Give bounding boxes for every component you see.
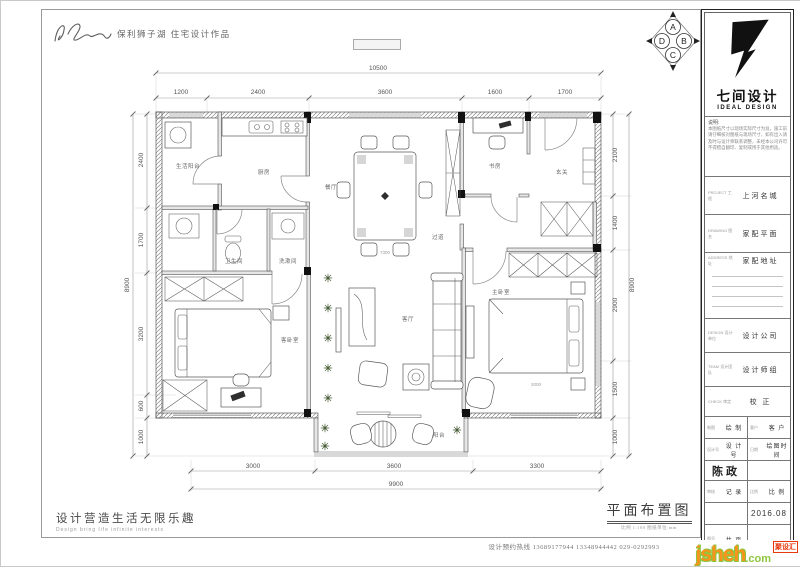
svg-text:2400: 2400 — [251, 89, 266, 96]
compass-b: B — [681, 36, 687, 46]
svg-text:2900: 2900 — [612, 297, 619, 312]
tb-date-row: 2016.08 — [705, 503, 790, 525]
svg-text:3200: 3200 — [138, 326, 145, 341]
room-balcony: 阳台 — [433, 431, 445, 439]
svg-text:3000: 3000 — [246, 463, 261, 470]
room-master-bedroom: 主卧室 — [492, 288, 510, 296]
svg-text:1500: 1500 — [612, 381, 619, 396]
signature-mark — [51, 17, 113, 49]
svg-text:2400: 2400 — [138, 152, 145, 167]
tb-stamp-row: 陈政 — [705, 461, 790, 481]
room-bath: 卫生间 — [225, 257, 243, 265]
svg-text:1700: 1700 — [138, 232, 145, 247]
svg-text:7300: 7300 — [380, 250, 391, 255]
drawing-title: 平面布置图 比例 1:100 图纸单位:mm — [595, 500, 703, 531]
svg-text:3600: 3600 — [378, 89, 393, 96]
room-service-balcony: 生活阳台 — [176, 162, 200, 170]
svg-text:1200: 1200 — [174, 89, 189, 96]
svg-text:3600: 3600 — [387, 463, 402, 470]
contact-line: 设计预约热线 13689177944 13348944442 029-02929… — [441, 541, 707, 551]
compass-a: A — [670, 22, 676, 32]
dim-left-overall: 8900 — [124, 277, 131, 292]
title-block: 七间设计 IDEAL DESIGN 说明: 本图纸尺寸以现场实际尺寸为准，施工前… — [701, 9, 794, 557]
dim-right-overall: 8900 — [629, 277, 636, 292]
room-living: 客厅 — [402, 315, 414, 323]
project-title: 保利狮子湖 住宅设计作品 — [117, 28, 231, 40]
floor-plan: 10500 1200 2400 3600 1600 1700 2400 1700… — [121, 56, 646, 506]
room-dining: 餐厅 — [325, 183, 337, 191]
drawing-date: 2016.08 — [750, 509, 788, 518]
studio-slogan: 设计营造生活无限乐趣 Design bring life infinite in… — [56, 510, 196, 533]
tb-row-project: PROJECT 工程 上河名城 — [705, 177, 790, 215]
svg-text:1700: 1700 — [558, 89, 573, 96]
furniture-layer — [163, 118, 597, 447]
seven-logo-icon — [718, 17, 778, 79]
svg-text:3300: 3300 — [530, 463, 545, 470]
room-study: 书房 — [489, 162, 501, 170]
compass: A B C D — [644, 9, 702, 73]
watermark-site: jsheh — [695, 546, 745, 565]
firm-name-cn: 七间设计 — [705, 85, 790, 105]
dim-bottom-overall: 9900 — [389, 481, 404, 488]
svg-text:1000: 1000 — [612, 429, 619, 444]
top-stamp-box — [353, 39, 401, 50]
room-guest-bedroom: 客卧室 — [281, 336, 299, 344]
watermark-tld: .com — [745, 554, 771, 565]
notes-section: 说明: 本图纸尺寸以现场实际尺寸为准，施工前 请仔细核对图纸与现场尺寸，如有出入… — [705, 117, 790, 177]
designer-signature — [51, 17, 113, 49]
tb-grid-row-2: 设计号设 计 号 日期绘图时间 — [705, 439, 790, 461]
designer-stamp: 陈政 — [707, 463, 745, 479]
room-entry: 玄关 — [556, 168, 568, 176]
compass-d: D — [659, 36, 665, 46]
tb-row-address: ADDRESS 地址 家配地址 — [705, 253, 790, 319]
tb-grid-row-1: 制图绘 制 客户客 户 — [705, 417, 790, 439]
drawing-sheet: 保利狮子湖 住宅设计作品 A B C D — [0, 0, 800, 567]
tb-row-design-unit: DESIGN 设计单位 设计公司 — [705, 319, 790, 353]
watermark-badge: 聚设汇 — [773, 541, 798, 553]
svg-text:2100: 2100 — [612, 147, 619, 162]
svg-text:1400: 1400 — [612, 215, 619, 230]
firm-logo: 七间设计 IDEAL DESIGN — [705, 13, 790, 117]
compass-c: C — [670, 50, 676, 60]
svg-text:600: 600 — [138, 400, 145, 411]
tb-row-check: CHECK 审定 校 正 — [705, 387, 790, 417]
tb-row-drawing: DRAWING 图名 家配平面 — [705, 215, 790, 253]
room-hallway: 过道 — [432, 233, 444, 241]
dim-top-overall: 10500 — [369, 65, 387, 72]
firm-name-en: IDEAL DESIGN — [705, 105, 790, 111]
tb-grid-row-4: 审核记 录 比例比 例 — [705, 481, 790, 503]
tb-row-team: TEAM 设计团队 设计师组 — [705, 353, 790, 387]
room-kitchen: 厨房 — [258, 168, 270, 176]
svg-text:2000: 2000 — [531, 382, 542, 387]
room-wash: 洗漱间 — [279, 257, 297, 265]
watermark: jsheh .com 聚设汇 — [687, 540, 800, 566]
svg-text:1600: 1600 — [488, 89, 503, 96]
svg-text:1000: 1000 — [138, 429, 145, 444]
